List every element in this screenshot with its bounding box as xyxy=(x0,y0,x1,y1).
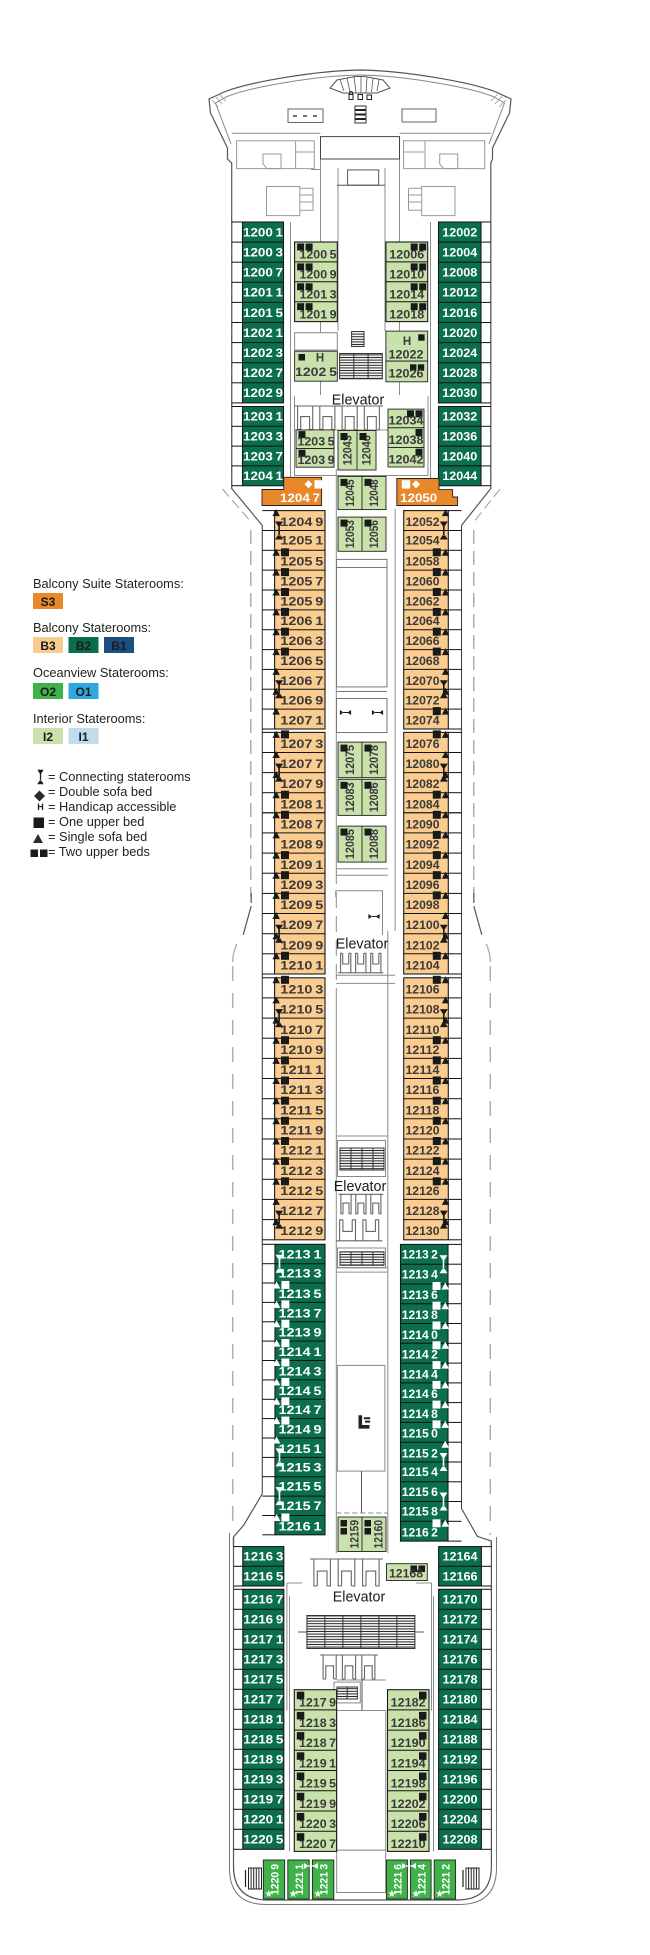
svg-text:1208 9: 1208 9 xyxy=(280,840,323,852)
svg-text:12010: 12010 xyxy=(389,270,424,282)
svg-text:12104: 12104 xyxy=(406,961,441,973)
svg-text:1203 9: 1203 9 xyxy=(298,455,335,467)
svg-text:★: ★ xyxy=(313,1889,322,1900)
svg-text:12008: 12008 xyxy=(442,268,478,280)
svg-text:12176: 12176 xyxy=(443,1655,478,1667)
svg-text:1213 2: 1213 2 xyxy=(402,1250,438,1262)
svg-text:12168: 12168 xyxy=(389,1569,424,1581)
svg-text:12068: 12068 xyxy=(406,656,441,668)
svg-text:12082: 12082 xyxy=(406,779,440,791)
svg-text:1207 7: 1207 7 xyxy=(280,759,323,771)
svg-text:1204 9: 1204 9 xyxy=(280,517,323,529)
svg-text:1200 1: 1200 1 xyxy=(243,227,284,239)
svg-text:12186: 12186 xyxy=(391,1718,426,1730)
svg-text:12164: 12164 xyxy=(443,1552,479,1564)
svg-text:1213 3: 1213 3 xyxy=(279,1269,322,1281)
svg-text:12128: 12128 xyxy=(406,1206,441,1218)
svg-text:1212 5: 1212 5 xyxy=(280,1186,324,1198)
svg-text:12040: 12040 xyxy=(442,451,477,463)
svg-text:12200: 12200 xyxy=(443,1795,478,1807)
svg-text:1203 7: 1203 7 xyxy=(243,451,283,463)
svg-text:12178: 12178 xyxy=(443,1675,479,1687)
svg-text:I2: I2 xyxy=(43,730,53,744)
svg-text:B2: B2 xyxy=(76,639,92,653)
svg-text:12062: 12062 xyxy=(406,596,440,608)
svg-text:1209 1: 1209 1 xyxy=(280,860,324,872)
svg-text:1217 5: 1217 5 xyxy=(243,1675,284,1687)
svg-text:1212 3: 1212 3 xyxy=(280,1166,323,1178)
svg-text:O1: O1 xyxy=(75,685,91,699)
svg-text:1215 6: 1215 6 xyxy=(402,1487,438,1499)
svg-text:12058: 12058 xyxy=(406,557,441,569)
svg-text:12198: 12198 xyxy=(391,1779,427,1791)
svg-text:1216 2: 1216 2 xyxy=(402,1528,438,1540)
svg-text:12116: 12116 xyxy=(406,1085,440,1097)
svg-text:1214 4: 1214 4 xyxy=(402,1369,439,1381)
svg-text:1214 0: 1214 0 xyxy=(402,1330,438,1342)
svg-text:1215 2: 1215 2 xyxy=(402,1449,438,1461)
svg-text:12196: 12196 xyxy=(443,1775,478,1787)
svg-text:12064: 12064 xyxy=(406,616,441,628)
svg-text:12016: 12016 xyxy=(442,308,477,320)
svg-text:1213 4: 1213 4 xyxy=(402,1269,439,1281)
svg-text:Elevator: Elevator xyxy=(333,1590,386,1606)
svg-text:12090: 12090 xyxy=(406,819,440,831)
svg-text:1211 5: 1211 5 xyxy=(280,1105,324,1117)
svg-text:1206 7: 1206 7 xyxy=(280,676,323,688)
svg-text:12092: 12092 xyxy=(406,840,440,852)
svg-text:1213 1: 1213 1 xyxy=(279,1249,323,1261)
svg-text:12112: 12112 xyxy=(406,1045,440,1057)
svg-text:12070: 12070 xyxy=(406,676,440,688)
svg-text:1205 9: 1205 9 xyxy=(280,596,323,608)
svg-text:12060: 12060 xyxy=(406,577,440,589)
svg-text:12018: 12018 xyxy=(389,309,425,321)
svg-text:S3: S3 xyxy=(41,595,56,609)
svg-text:1202 9: 1202 9 xyxy=(243,388,283,400)
svg-text:1215 5: 1215 5 xyxy=(279,1482,323,1494)
svg-text:12210: 12210 xyxy=(391,1839,426,1851)
svg-text:1201 1: 1201 1 xyxy=(243,288,284,300)
svg-text:★: ★ xyxy=(435,1889,444,1900)
svg-text:12188: 12188 xyxy=(443,1735,479,1747)
svg-text:1201 9: 1201 9 xyxy=(300,309,337,321)
svg-text:12108: 12108 xyxy=(406,1005,441,1017)
svg-text:12084: 12084 xyxy=(406,799,441,811)
svg-text:12120: 12120 xyxy=(406,1126,440,1138)
svg-text:12026: 12026 xyxy=(389,369,424,381)
svg-text:H: H xyxy=(37,802,44,812)
svg-text:1213 9: 1213 9 xyxy=(279,1328,322,1340)
svg-text:12122: 12122 xyxy=(406,1146,440,1158)
svg-text:1220 3: 1220 3 xyxy=(299,1819,336,1831)
svg-text:12110: 12110 xyxy=(406,1025,440,1037)
svg-text:1209 9: 1209 9 xyxy=(280,940,323,952)
svg-text:1218 1: 1218 1 xyxy=(243,1715,284,1727)
svg-text:1202 3: 1202 3 xyxy=(243,348,283,360)
svg-text:12024: 12024 xyxy=(442,348,478,360)
svg-text:1214 1: 1214 1 xyxy=(279,1347,323,1359)
svg-text:12034: 12034 xyxy=(389,416,425,428)
svg-text:12102: 12102 xyxy=(406,940,440,952)
svg-text:12094: 12094 xyxy=(406,860,441,872)
svg-text:1211 3: 1211 3 xyxy=(280,1085,323,1097)
svg-text:H: H xyxy=(316,353,324,365)
svg-text:1202 7: 1202 7 xyxy=(243,368,283,380)
svg-text:1215 3: 1215 3 xyxy=(279,1462,322,1474)
svg-text:12166: 12166 xyxy=(443,1572,478,1584)
svg-text:1204 7: 1204 7 xyxy=(280,493,320,505)
svg-text:12074: 12074 xyxy=(406,716,441,728)
svg-text:12130: 12130 xyxy=(406,1226,440,1238)
svg-text:12204: 12204 xyxy=(443,1815,479,1827)
svg-text:★: ★ xyxy=(412,1889,421,1900)
svg-text:1216 5: 1216 5 xyxy=(243,1572,284,1584)
svg-text:12160: 12160 xyxy=(374,1520,386,1549)
svg-text:12006: 12006 xyxy=(389,250,424,262)
svg-text:1214 7: 1214 7 xyxy=(279,1405,322,1417)
svg-text:1202 1: 1202 1 xyxy=(243,328,284,340)
svg-text:1220 1: 1220 1 xyxy=(243,1815,284,1827)
svg-text:1219 5: 1219 5 xyxy=(299,1779,337,1791)
svg-text:Balcony Suite Staterooms:: Balcony Suite Staterooms: xyxy=(33,576,184,591)
svg-text:12066: 12066 xyxy=(406,636,440,648)
svg-text:12184: 12184 xyxy=(443,1715,479,1727)
svg-text:12100: 12100 xyxy=(406,920,440,932)
svg-text:1200 5: 1200 5 xyxy=(300,250,338,262)
svg-text:12124: 12124 xyxy=(406,1166,441,1178)
svg-text:1217 7: 1217 7 xyxy=(243,1695,283,1707)
svg-text:12002: 12002 xyxy=(442,227,477,239)
svg-text:12032: 12032 xyxy=(442,412,477,424)
svg-text:1214 8: 1214 8 xyxy=(402,1409,439,1421)
svg-text:1210 1: 1210 1 xyxy=(280,961,324,973)
svg-text:12118: 12118 xyxy=(406,1105,441,1117)
svg-text:1216 9: 1216 9 xyxy=(243,1615,283,1627)
svg-text:1208 1: 1208 1 xyxy=(280,799,324,811)
svg-text:1214 2: 1214 2 xyxy=(402,1350,438,1362)
svg-text:= Double sofa bed: = Double sofa bed xyxy=(48,784,152,799)
svg-text:= One upper bed: = One upper bed xyxy=(48,814,144,829)
svg-text:1205 7: 1205 7 xyxy=(280,577,323,589)
svg-text:12030: 12030 xyxy=(442,388,477,400)
svg-text:1216 3: 1216 3 xyxy=(243,1552,283,1564)
svg-text:1218 9: 1218 9 xyxy=(243,1755,283,1767)
svg-text:1214 5: 1214 5 xyxy=(279,1386,323,1398)
svg-text:1209 7: 1209 7 xyxy=(280,920,323,932)
svg-text:1215 8: 1215 8 xyxy=(402,1507,439,1519)
svg-text:12202: 12202 xyxy=(391,1799,426,1811)
svg-text:12076: 12076 xyxy=(406,739,440,751)
svg-text:1216 7: 1216 7 xyxy=(243,1595,283,1607)
svg-text:1209 5: 1209 5 xyxy=(280,900,324,912)
svg-text:1214 9: 1214 9 xyxy=(279,1425,322,1437)
svg-text:★: ★ xyxy=(264,1889,273,1900)
svg-text:12096: 12096 xyxy=(406,880,440,892)
svg-text:12159: 12159 xyxy=(350,1520,362,1549)
svg-text:12114: 12114 xyxy=(406,1065,441,1077)
svg-text:1200 9: 1200 9 xyxy=(300,270,337,282)
svg-text:12192: 12192 xyxy=(443,1755,478,1767)
svg-text:1220 7: 1220 7 xyxy=(299,1839,336,1851)
svg-text:1213 8: 1213 8 xyxy=(402,1310,439,1322)
svg-text:Balcony Staterooms:: Balcony Staterooms: xyxy=(33,620,151,635)
svg-text:12174: 12174 xyxy=(443,1635,479,1647)
svg-text:★: ★ xyxy=(289,1889,298,1900)
svg-text:1218 7: 1218 7 xyxy=(299,1738,336,1750)
svg-text:1200 3: 1200 3 xyxy=(243,247,283,259)
svg-text:1202 5: 1202 5 xyxy=(295,367,338,379)
svg-text:1210 9: 1210 9 xyxy=(280,1045,323,1057)
svg-text:12072: 12072 xyxy=(406,696,440,708)
svg-text:1210 5: 1210 5 xyxy=(280,1005,324,1017)
svg-text:Elevator: Elevator xyxy=(332,393,385,409)
svg-text:1201 3: 1201 3 xyxy=(300,290,337,302)
svg-text:1205 5: 1205 5 xyxy=(280,557,324,569)
svg-text:1203 1: 1203 1 xyxy=(243,412,284,424)
svg-text:12012: 12012 xyxy=(442,288,477,300)
svg-text:1214 3: 1214 3 xyxy=(279,1366,322,1378)
svg-text:1209 3: 1209 3 xyxy=(280,880,323,892)
svg-text:1215 7: 1215 7 xyxy=(279,1501,322,1513)
svg-text:12206: 12206 xyxy=(391,1819,426,1831)
svg-text:1206 1: 1206 1 xyxy=(280,616,324,628)
svg-text:1203 3: 1203 3 xyxy=(243,432,283,444)
svg-text:I1: I1 xyxy=(78,730,88,744)
svg-text:O2: O2 xyxy=(40,685,56,699)
svg-text:= Connecting staterooms: = Connecting staterooms xyxy=(48,769,191,784)
svg-text:12052: 12052 xyxy=(406,517,440,529)
svg-text:1204 1: 1204 1 xyxy=(243,471,284,483)
svg-text:12014: 12014 xyxy=(389,290,425,302)
svg-text:Interior Staterooms:: Interior Staterooms: xyxy=(33,711,145,726)
svg-text:1203 5: 1203 5 xyxy=(298,436,336,448)
svg-text:1215 1: 1215 1 xyxy=(279,1444,323,1456)
svg-text:= Two upper beds: = Two upper beds xyxy=(48,844,150,859)
svg-text:Elevator: Elevator xyxy=(334,1179,387,1195)
svg-text:1201 5: 1201 5 xyxy=(243,308,284,320)
svg-text:1206 3: 1206 3 xyxy=(280,636,323,648)
svg-text:B1: B1 xyxy=(111,639,127,653)
svg-text:1213 7: 1213 7 xyxy=(279,1308,322,1320)
svg-text:1215 4: 1215 4 xyxy=(402,1467,439,1479)
svg-text:1212 1: 1212 1 xyxy=(280,1146,324,1158)
svg-text:1218 5: 1218 5 xyxy=(243,1735,284,1747)
svg-text:H: H xyxy=(403,336,411,348)
svg-text:1217 9: 1217 9 xyxy=(299,1698,336,1710)
svg-text:12042: 12042 xyxy=(389,455,424,467)
svg-text:1210 7: 1210 7 xyxy=(280,1025,323,1037)
svg-text:12180: 12180 xyxy=(443,1695,478,1707)
svg-text:1210 3: 1210 3 xyxy=(280,984,323,996)
svg-text:12098: 12098 xyxy=(406,900,441,912)
svg-text:1212 7: 1212 7 xyxy=(280,1206,323,1218)
svg-text:1219 9: 1219 9 xyxy=(299,1799,336,1811)
svg-text:1219 3: 1219 3 xyxy=(243,1775,283,1787)
svg-text:12004: 12004 xyxy=(442,247,478,259)
svg-text:12020: 12020 xyxy=(442,328,477,340)
svg-text:12080: 12080 xyxy=(406,759,440,771)
svg-text:1212 9: 1212 9 xyxy=(280,1226,323,1238)
svg-text:12106: 12106 xyxy=(406,984,440,996)
svg-text:1206 9: 1206 9 xyxy=(280,696,323,708)
svg-text:1217 1: 1217 1 xyxy=(243,1635,284,1647)
svg-text:12050: 12050 xyxy=(400,493,437,505)
svg-text:Oceanview Staterooms:: Oceanview Staterooms: xyxy=(33,665,169,680)
svg-text:1200 7: 1200 7 xyxy=(243,268,283,280)
svg-text:1217 3: 1217 3 xyxy=(243,1655,283,1667)
svg-text:= Handicap accessible: = Handicap accessible xyxy=(48,799,176,814)
svg-text:12190: 12190 xyxy=(391,1738,426,1750)
svg-text:12028: 12028 xyxy=(442,368,478,380)
svg-text:1205 1: 1205 1 xyxy=(280,536,324,548)
svg-text:12022: 12022 xyxy=(389,350,424,362)
svg-text:12054: 12054 xyxy=(406,536,441,548)
svg-text:1214 6: 1214 6 xyxy=(402,1389,438,1401)
svg-text:1207 1: 1207 1 xyxy=(280,716,324,728)
svg-text:1211 9: 1211 9 xyxy=(280,1126,323,1138)
svg-text:1206 5: 1206 5 xyxy=(280,656,324,668)
svg-text:1213 5: 1213 5 xyxy=(279,1289,323,1301)
svg-text:12172: 12172 xyxy=(443,1615,478,1627)
svg-text:1220 5: 1220 5 xyxy=(243,1835,284,1847)
svg-text:12170: 12170 xyxy=(443,1595,478,1607)
svg-text:12126: 12126 xyxy=(406,1186,440,1198)
svg-text:1207 3: 1207 3 xyxy=(280,739,323,751)
svg-text:12038: 12038 xyxy=(389,435,425,447)
svg-text:12208: 12208 xyxy=(443,1835,479,1847)
svg-text:12036: 12036 xyxy=(442,432,477,444)
svg-text:1207 9: 1207 9 xyxy=(280,779,323,791)
svg-text:= Single sofa bed: = Single sofa bed xyxy=(48,829,147,844)
svg-text:1218 3: 1218 3 xyxy=(299,1718,336,1730)
svg-text:12182: 12182 xyxy=(391,1698,426,1710)
svg-text:1216 1: 1216 1 xyxy=(279,1521,323,1533)
svg-text:12044: 12044 xyxy=(442,471,478,483)
svg-text:B3: B3 xyxy=(40,639,56,653)
svg-text:12194: 12194 xyxy=(391,1758,427,1770)
svg-text:Elevator: Elevator xyxy=(336,937,389,953)
svg-text:★: ★ xyxy=(387,1889,396,1900)
svg-text:1215 0: 1215 0 xyxy=(402,1429,438,1441)
svg-text:1219 7: 1219 7 xyxy=(243,1795,283,1807)
svg-text:1208 7: 1208 7 xyxy=(280,819,323,831)
svg-text:1213 6: 1213 6 xyxy=(402,1290,438,1302)
svg-text:1211 1: 1211 1 xyxy=(280,1065,324,1077)
svg-text:1219 1: 1219 1 xyxy=(299,1758,337,1770)
